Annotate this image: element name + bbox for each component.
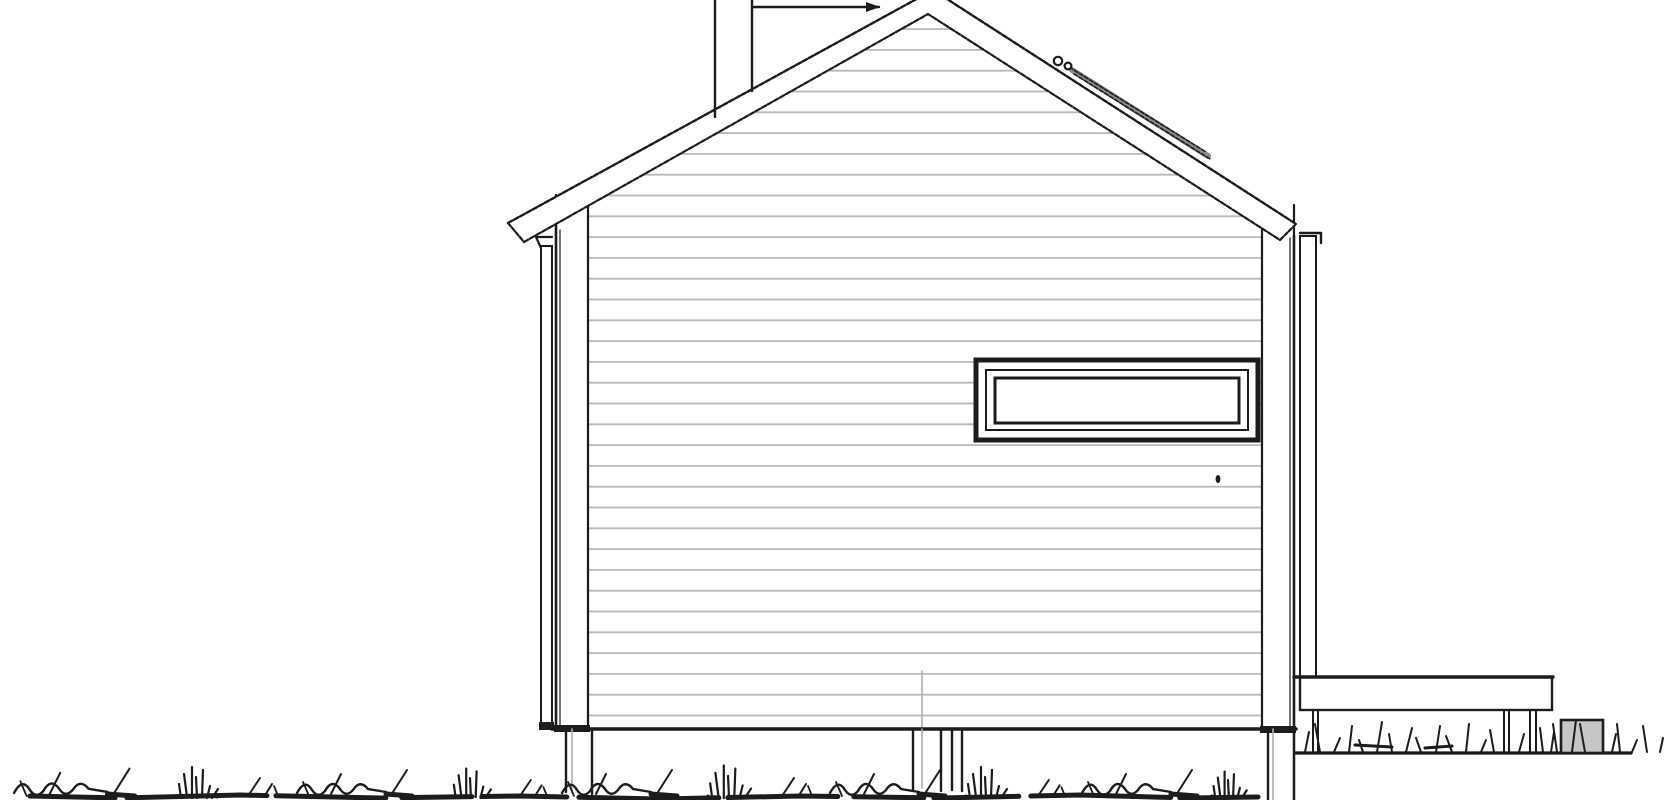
foundation-posts [566,729,1273,800]
strip-window [976,360,1258,440]
small-fitting-dot [1216,475,1221,483]
house-side-elevation-drawing [0,0,1670,800]
ground-grass [14,720,1663,799]
elevation-drawing-canvas [0,0,1670,800]
